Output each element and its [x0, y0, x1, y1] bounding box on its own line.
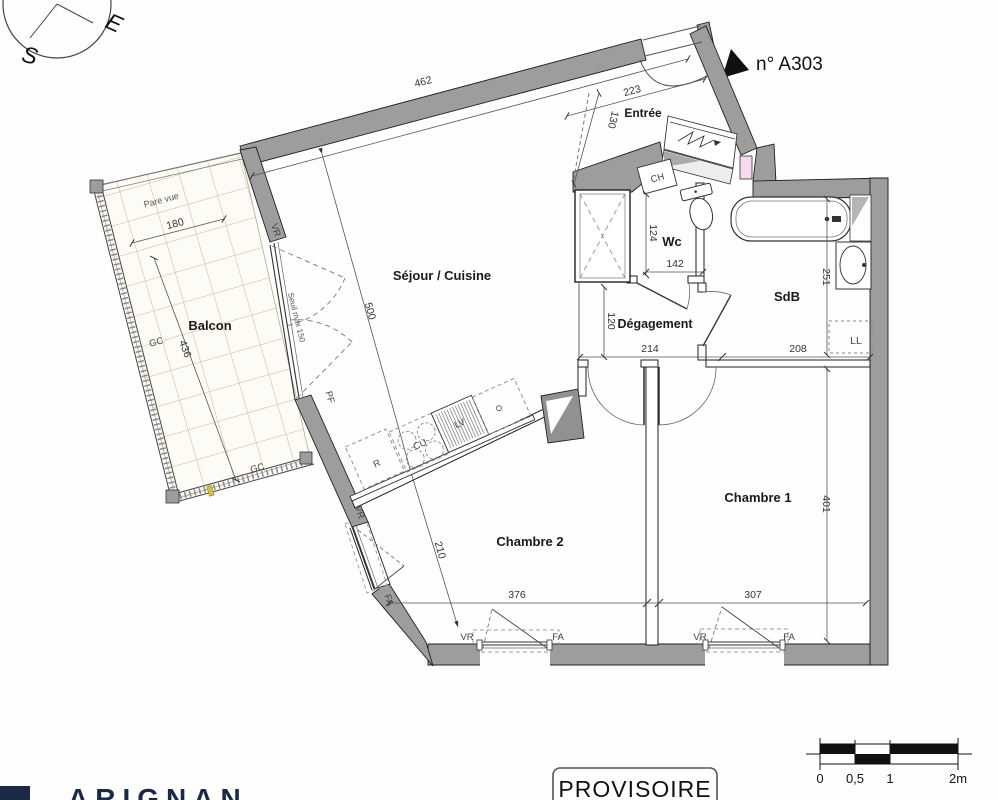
railing-post — [90, 180, 103, 193]
entrance-door-swing — [640, 60, 707, 86]
wall-sdb-west-stub — [698, 283, 706, 292]
logo-square-icon — [0, 786, 30, 800]
salle-de-bain: SdB LL 251 — [703, 195, 872, 355]
room-label-sdb: SdB — [774, 289, 800, 304]
compass-east-label: E — [102, 8, 127, 38]
pf-label: PF — [322, 390, 336, 405]
ll-label: LL — [850, 335, 862, 347]
dim-251: 251 — [820, 268, 832, 286]
scale-bar: 0 0,5 1 2m — [806, 738, 972, 786]
room-label-chambre1: Chambre 1 — [724, 490, 791, 505]
dim-401: 401 — [820, 495, 832, 513]
wc: Wc 124 142 — [637, 183, 721, 309]
floor-plan-page: E S n° A303 Pare vue 180 436 GC GC Balco… — [0, 0, 998, 800]
basin-faucet-icon — [862, 263, 866, 267]
scale-0: 0 — [816, 771, 823, 786]
dim-307: 307 — [744, 589, 762, 601]
wall-top — [240, 39, 646, 166]
dim-376: 376 — [508, 589, 526, 601]
degagement: Dégagement 120 214 208 — [580, 287, 870, 425]
wall-degagement-stub — [578, 360, 588, 367]
cu-label: CU — [412, 437, 429, 453]
vr-label-chambre2s: VR — [460, 632, 473, 643]
wc-door-swing — [687, 283, 690, 309]
scale-05: 0,5 — [846, 771, 864, 786]
chambre2-door-swing — [588, 367, 644, 425]
room-label-balcon: Balcon — [188, 318, 231, 333]
railing-post — [166, 490, 179, 503]
dim-142: 142 — [666, 258, 684, 270]
fa-label-chambre2s: FA — [552, 632, 564, 643]
railing-post — [300, 452, 312, 464]
room-label-chambre2: Chambre 2 — [496, 534, 563, 549]
unit-number: n° A303 — [722, 49, 823, 78]
fa-label-chambre1: FA — [783, 632, 795, 643]
sdb-door-leaf — [703, 295, 731, 346]
sdb-door-swing — [703, 291, 731, 295]
dim-130: 130 — [605, 110, 621, 130]
developer-logo: ARIGNAN — [0, 783, 248, 800]
wall-chambre2-stub — [578, 367, 586, 396]
room-label-wc: Wc — [662, 234, 682, 249]
wall-right — [870, 178, 888, 665]
room-label-degagement: Dégagement — [617, 317, 693, 331]
chambre1-door-swing — [659, 367, 716, 425]
wall-wc-south-stub — [688, 276, 704, 283]
scale-2m: 2m — [949, 771, 967, 786]
floor-plan-drawing: E S n° A303 Pare vue 180 436 GC GC Balco… — [0, 0, 998, 800]
balcony: Pare vue 180 436 GC GC Balcon — [90, 153, 314, 503]
wall-bottom-left-diagonal — [372, 582, 433, 666]
wc-door-leaf — [637, 283, 687, 309]
room-label-sejour: Séjour / Cuisine — [393, 268, 491, 283]
dim-120: 120 — [605, 312, 617, 330]
compass-rose-icon: E S — [3, 0, 127, 70]
scale-1: 1 — [886, 771, 893, 786]
chambre1-window: VR FA — [693, 607, 795, 652]
wall-doors-stub — [641, 360, 658, 367]
logo-partial-text: ARIGNAN — [68, 783, 248, 800]
unit-number-label: n° A303 — [756, 54, 823, 75]
kitchen-duct — [541, 389, 584, 443]
dim-214: 214 — [641, 343, 659, 355]
wall-jog — [753, 144, 776, 183]
entree-wardrobe — [575, 190, 630, 282]
technical-duct-pink — [740, 156, 752, 179]
toilet — [680, 183, 721, 233]
dim-500: 500 — [362, 301, 378, 321]
wall-sdb-west-stub — [698, 345, 706, 360]
vr-label-chambre1: VR — [693, 632, 706, 643]
wall-chambre1-north — [706, 360, 870, 367]
dim-462: 462 — [413, 74, 433, 90]
stamp-text: PROVISOIRE — [558, 776, 711, 800]
dim-210: 210 — [432, 540, 448, 560]
room-label-entree: Entrée — [624, 106, 662, 120]
dim-124: 124 — [647, 224, 659, 242]
gc-label-2: GC — [249, 461, 266, 475]
provisional-stamp: PROVISOIRE — [553, 768, 717, 800]
r-label: R — [372, 458, 383, 471]
dim-208: 208 — [789, 343, 807, 355]
